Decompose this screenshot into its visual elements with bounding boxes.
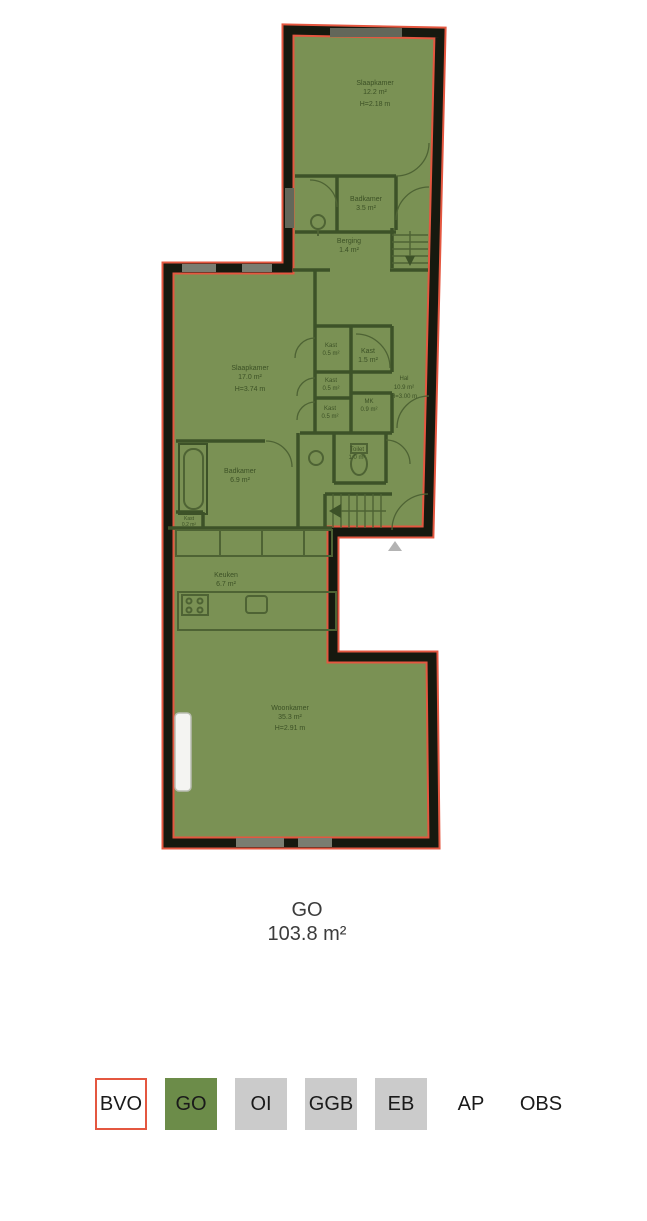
svg-text:Kast: Kast xyxy=(324,406,336,412)
svg-text:0.5 m²: 0.5 m² xyxy=(322,386,339,392)
svg-text:Badkamer: Badkamer xyxy=(350,196,383,203)
svg-text:1.4 m²: 1.4 m² xyxy=(339,247,360,254)
svg-text:1.0 m²: 1.0 m² xyxy=(348,455,365,461)
svg-text:0.2 m²: 0.2 m² xyxy=(182,522,197,528)
radiator xyxy=(175,713,191,791)
svg-text:Woonkamer: Woonkamer xyxy=(271,705,309,712)
window-segment xyxy=(330,28,402,37)
svg-text:Hal: Hal xyxy=(399,376,408,382)
legend-item-bvo[interactable]: BVO xyxy=(95,1078,147,1130)
svg-text:0.5 m²: 0.5 m² xyxy=(322,351,339,357)
window-segment xyxy=(182,264,216,272)
svg-text:35.3 m²: 35.3 m² xyxy=(278,714,302,721)
svg-text:Badkamer: Badkamer xyxy=(224,468,257,475)
svg-text:H=3.00 m: H=3.00 m xyxy=(391,394,417,400)
svg-text:H=3.74 m: H=3.74 m xyxy=(235,386,266,393)
svg-text:Kast: Kast xyxy=(325,378,337,384)
svg-text:MK: MK xyxy=(365,399,374,405)
svg-text:17.0 m²: 17.0 m² xyxy=(238,374,262,381)
legend-item-oi[interactable]: OI xyxy=(235,1078,287,1130)
legend-item-ap[interactable]: AP xyxy=(445,1078,497,1130)
svg-text:3.5 m²: 3.5 m² xyxy=(356,205,377,212)
entrance-marker-icon xyxy=(388,541,402,551)
floor-plan: Slaapkamer 12.2 m² H=2.18 m Badkamer 3.5… xyxy=(0,0,647,870)
svg-text:Keuken: Keuken xyxy=(214,572,238,579)
legend-item-go[interactable]: GO xyxy=(165,1078,217,1130)
svg-text:1.5 m²: 1.5 m² xyxy=(358,357,379,364)
svg-text:6.9 m²: 6.9 m² xyxy=(230,477,251,484)
plan-summary: GO 103.8 m² xyxy=(0,898,614,946)
svg-text:H=2.18 m: H=2.18 m xyxy=(360,101,391,108)
svg-text:Kast: Kast xyxy=(361,348,375,355)
legend-bar: BVO GO OI GGB EB AP OBS xyxy=(95,1078,567,1130)
window-segment xyxy=(285,188,294,228)
legend-item-ggb[interactable]: GGB xyxy=(305,1078,357,1130)
svg-text:Berging: Berging xyxy=(337,238,361,245)
svg-text:H=2.91 m: H=2.91 m xyxy=(275,725,306,732)
summary-label: GO xyxy=(0,898,614,922)
legend-item-eb[interactable]: EB xyxy=(375,1078,427,1130)
window-segment xyxy=(242,264,272,272)
svg-text:Kast: Kast xyxy=(325,343,337,349)
exterior-wall xyxy=(168,30,440,843)
svg-text:Slaapkamer: Slaapkamer xyxy=(231,365,269,372)
window-segment xyxy=(236,838,284,847)
svg-text:6.7 m²: 6.7 m² xyxy=(216,581,237,588)
svg-text:0.9 m²: 0.9 m² xyxy=(360,407,377,413)
svg-text:Slaapkamer: Slaapkamer xyxy=(356,80,394,87)
svg-text:Toilet: Toilet xyxy=(350,447,364,453)
svg-text:12.2 m²: 12.2 m² xyxy=(363,89,387,96)
legend-item-obs[interactable]: OBS xyxy=(515,1078,567,1130)
window-segment xyxy=(298,838,332,847)
summary-area: 103.8 m² xyxy=(0,922,614,946)
svg-text:10.9 m²: 10.9 m² xyxy=(394,385,414,391)
svg-text:0.5 m²: 0.5 m² xyxy=(321,414,338,420)
